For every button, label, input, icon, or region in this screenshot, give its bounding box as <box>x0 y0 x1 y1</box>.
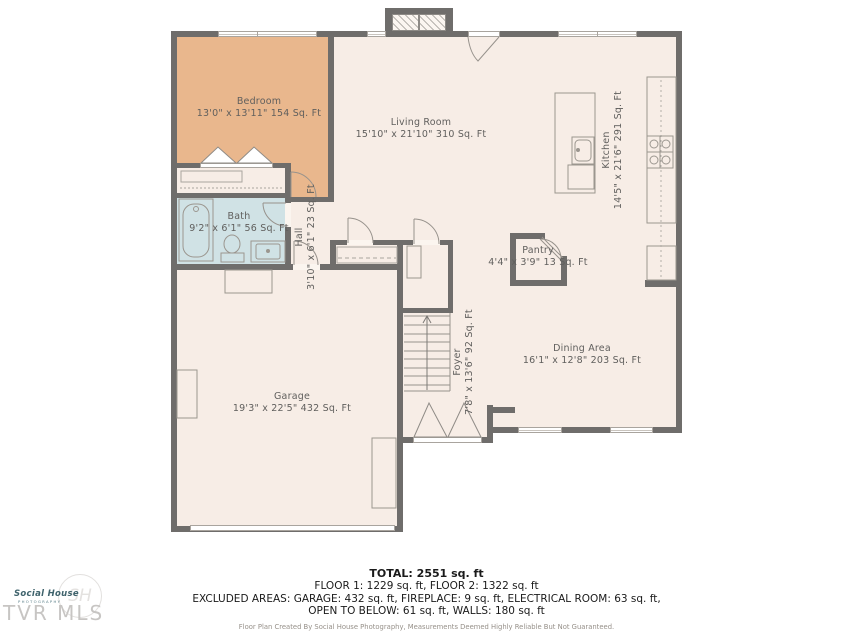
foyer-label: Foyer 7'8" x 13'6" 92 Sq. Ft <box>452 309 476 415</box>
room-name: Living Room <box>356 117 487 129</box>
room-name: Foyer <box>452 309 464 415</box>
room-name: Garage <box>233 391 351 403</box>
kitchen-label: Kitchen 14'5" x 21'6" 291 Sq. Ft <box>601 91 625 209</box>
room-dims: 14'5" x 21'6" 291 Sq. Ft <box>613 91 625 209</box>
room-name: Bedroom <box>197 96 321 108</box>
room-name: Bath <box>189 211 288 223</box>
stove <box>647 136 673 168</box>
stairs-up-arrow <box>423 316 431 390</box>
bifold-closet-doors <box>201 147 272 163</box>
staircase <box>404 313 450 391</box>
coat-closet-rod <box>337 247 397 263</box>
room-dims: 9'2" x 6'1" 56 Sq. Ft <box>189 223 288 235</box>
room-dims: 19'3" x 22'5" 432 Sq. Ft <box>233 403 351 415</box>
room-dims: 16'1" x 12'8" 203 Sq. Ft <box>523 355 641 367</box>
garage-shelf-left <box>177 370 197 418</box>
floor-plan-page: Bedroom 13'0" x 13'11" 154 Sq. Ft Living… <box>0 0 853 640</box>
room-name: Hall <box>294 184 306 290</box>
logo-brand-name: Social House <box>14 589 79 599</box>
pantry-label: Pantry 4'4" x 3'9" 13 Sq. Ft <box>488 245 587 269</box>
bath-label: Bath 9'2" x 6'1" 56 Sq. Ft <box>189 211 288 235</box>
room-dims: 15'10" x 21'10" 310 Sq. Ft <box>356 129 487 141</box>
brand-logo: SH Social House PHOTOGRAPHY TVR MLS <box>0 570 130 634</box>
room-name: Dining Area <box>523 343 641 355</box>
room-name: Pantry <box>488 245 587 257</box>
room-name: Kitchen <box>601 91 613 209</box>
plan-symbols-layer <box>0 0 853 640</box>
living-room-label: Living Room 15'10" x 21'10" 310 Sq. Ft <box>356 117 487 141</box>
kitchen-island <box>555 93 595 193</box>
room-dims: 7'8" x 13'6" 92 Sq. Ft <box>464 309 476 415</box>
island-sink <box>572 137 594 164</box>
bedroom-label: Bedroom 13'0" x 13'11" 154 Sq. Ft <box>197 96 321 120</box>
room-dims: 3'10" x 6'1" 23 Sq. Ft <box>306 184 318 290</box>
hall-label: Hall 3'10" x 6'1" 23 Sq. Ft <box>294 184 318 290</box>
mls-watermark: TVR MLS <box>3 601 104 625</box>
room-dims: 4'4" x 3'9" 13 Sq. Ft <box>488 257 587 269</box>
electrical-door-arc <box>414 219 439 244</box>
garage-utility-unit <box>372 438 396 508</box>
electrical-panel <box>407 246 421 278</box>
garage-shelf-top <box>225 270 272 293</box>
garage-label: Garage 19'3" x 22'5" 432 Sq. Ft <box>233 391 351 415</box>
toilet <box>221 235 244 262</box>
living-top-door-arc <box>468 37 499 61</box>
dining-area-label: Dining Area 16'1" x 12'8" 203 Sq. Ft <box>523 343 641 367</box>
room-dims: 13'0" x 13'11" 154 Sq. Ft <box>197 108 321 120</box>
bath-sink-vanity <box>251 241 285 262</box>
bedroom-closet-shelf <box>180 171 283 188</box>
coat-closet-door-arc <box>348 218 373 243</box>
